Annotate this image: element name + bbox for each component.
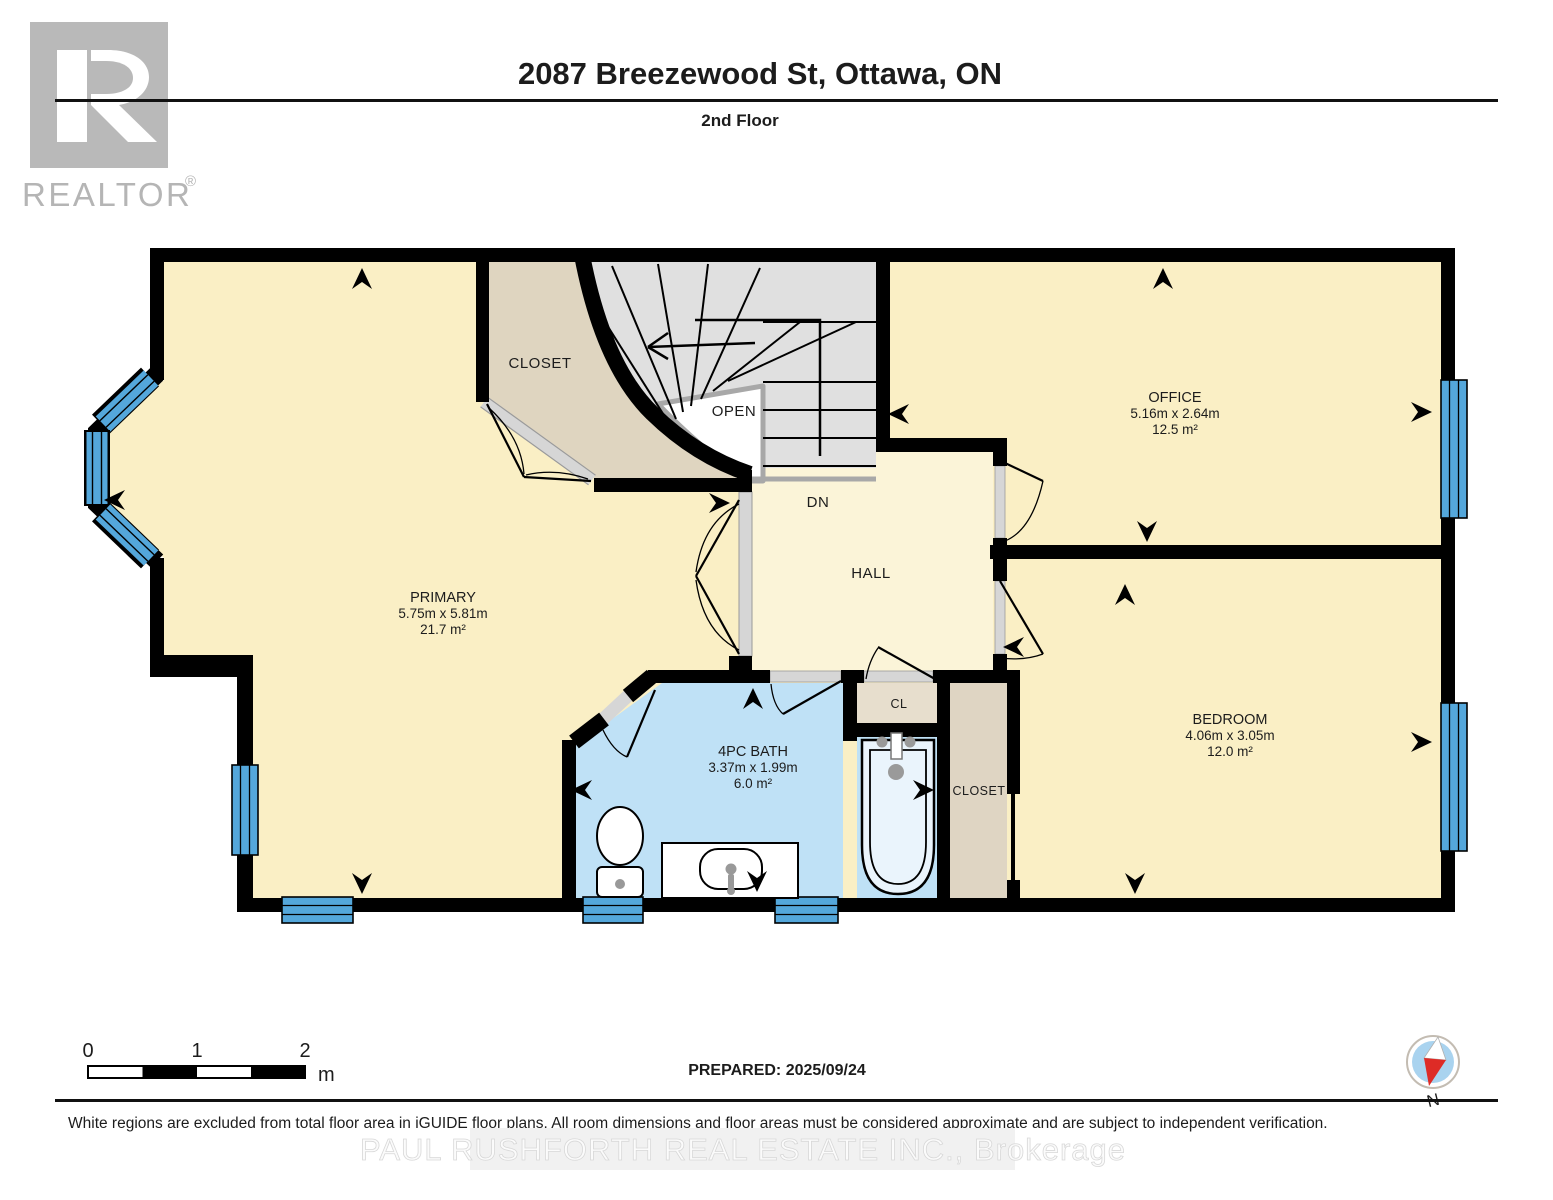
primary-name: PRIMARY: [410, 590, 476, 606]
scale-tick-1: 1: [191, 1040, 202, 1062]
scale-unit: m: [318, 1064, 335, 1086]
bath-dims: 3.37m x 1.99m: [708, 760, 797, 775]
bath-name: 4PC BATH: [718, 744, 788, 760]
primary-side-window: [232, 765, 258, 855]
bath-bottom-window-1: [583, 897, 643, 923]
office-name: OFFICE: [1148, 390, 1201, 406]
brokerage-watermark: PAUL RUSHFORTH REAL ESTATE INC., Brokera…: [360, 1132, 1126, 1167]
bedroom-name: BEDROOM: [1193, 712, 1268, 728]
toilet-icon: [597, 807, 643, 897]
office-window: [1441, 380, 1467, 518]
floor-subtitle: 2nd Floor: [701, 111, 779, 130]
bedroom-dims: 4.06m x 3.05m: [1185, 728, 1274, 743]
page-title: 2087 Breezewood St, Ottawa, ON: [518, 56, 1002, 91]
primary-area: 21.7 m²: [420, 622, 466, 637]
realtor-logo: REALTOR ®: [22, 22, 196, 213]
realtor-wordmark: REALTOR: [22, 176, 192, 213]
primary-bottom-window: [282, 897, 353, 923]
scale-tick-2: 2: [299, 1040, 310, 1062]
bathtub-icon: [862, 733, 934, 894]
scale-bar: 0 1 2 m: [82, 1040, 334, 1086]
floor-plan: PRIMARY 5.75m x 5.81m 21.7 m² OFFICE 5.1…: [93, 248, 1468, 923]
prepared-date: PREPARED: 2025/09/24: [688, 1062, 866, 1079]
bedroom-area: 12.0 m²: [1207, 744, 1253, 759]
office-dims: 5.16m x 2.64m: [1130, 406, 1219, 421]
vanity-sink-icon: [662, 843, 798, 898]
header-divider: [55, 99, 1498, 102]
dn-label: DN: [807, 494, 830, 511]
hall-label: HALL: [851, 565, 891, 582]
scale-tick-0: 0: [82, 1040, 93, 1062]
bath-area: 6.0 m²: [734, 776, 773, 791]
registered-mark: ®: [185, 173, 196, 190]
bath-bottom-window-2: [775, 897, 838, 923]
realtor-logo-r-stem: [57, 50, 87, 142]
bedroom-window: [1441, 703, 1467, 851]
footer-divider: [55, 1099, 1498, 1102]
closet-right-label: CLOSET: [952, 784, 1005, 798]
closet-top-label: CLOSET: [508, 355, 571, 372]
floor-plan-page: REALTOR ® 2087 Breezewood St, Ottawa, ON…: [0, 0, 1553, 1200]
open-label: OPEN: [712, 403, 757, 420]
office-area: 12.5 m²: [1152, 422, 1198, 437]
cl-label: CL: [891, 697, 908, 711]
primary-dims: 5.75m x 5.81m: [398, 606, 487, 621]
